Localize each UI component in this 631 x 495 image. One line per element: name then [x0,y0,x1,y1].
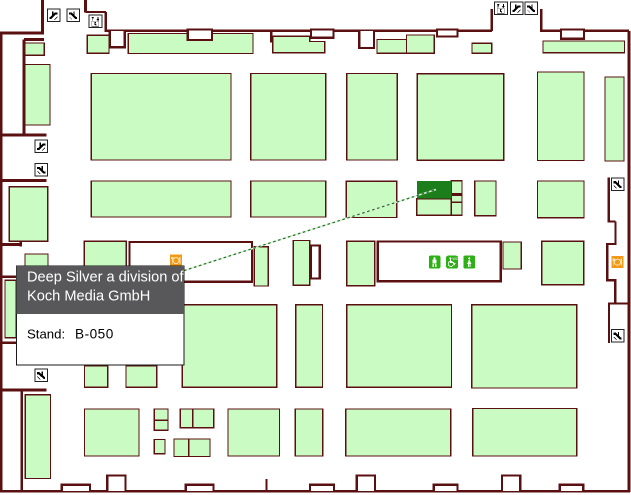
svg-text:Koch Media GmbH: Koch Media GmbH [27,289,150,305]
svg-text:B-050: B-050 [75,327,114,342]
svg-text:Stand:: Stand: [27,327,65,342]
svg-text:Deep Silver a division of: Deep Silver a division of [27,270,185,286]
svg-text:WC: WC [452,257,458,261]
